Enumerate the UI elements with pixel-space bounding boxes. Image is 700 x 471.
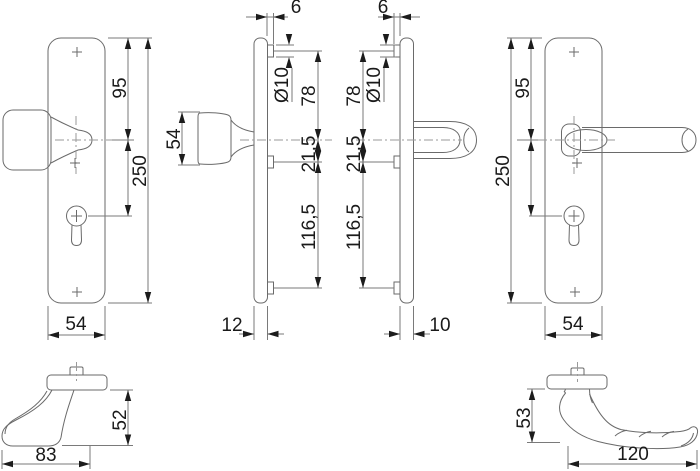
lever-grip-outline (560, 389, 698, 449)
screw-cross-marks (569, 47, 582, 297)
fixing-bolts (394, 45, 400, 294)
dim-label-12: 12 (221, 315, 242, 336)
dim-label-95-left: 95 (110, 77, 131, 98)
dim-label-d10-right: Ø10 (364, 67, 385, 103)
profile-dimension-lines (239, 13, 322, 340)
lever-front-outline (562, 124, 697, 156)
dim-label-54-right-plate: 54 (562, 314, 584, 335)
knob-detail-view: 52 83 (2, 362, 133, 469)
lever-detail-dimensions (527, 389, 697, 469)
dim-label-52: 52 (110, 409, 131, 430)
dimension-arrows (48, 38, 151, 338)
knob-rose-outline (47, 375, 107, 390)
knob-neck-top (231, 120, 254, 132)
dim-label-78-left: 78 (299, 85, 320, 106)
dimension-lines (48, 38, 152, 340)
knob-plate-front-view: 95 250 54 (3, 38, 152, 340)
technical-drawing-canvas: 95 250 54 54 (0, 0, 700, 471)
plate-profile-outline (400, 38, 414, 303)
dim-label-250-left: 250 (130, 155, 151, 187)
profile-arrows (360, 14, 425, 337)
dim-label-120: 120 (617, 444, 649, 465)
knob-grip-outline (2, 390, 74, 446)
lever-plate-front-view: 95 250 54 (493, 38, 696, 340)
dim-label-21-5-left: 21,5 (299, 136, 320, 173)
lever-detail-arrows (529, 389, 697, 467)
dim-label-6-left: 6 (291, 0, 302, 18)
knob-plate-profile-view: 6 Ø10 78 21,5 116,5 12 (221, 0, 332, 340)
dim-label-53: 53 (514, 407, 535, 428)
dim-label-250-right: 250 (493, 155, 514, 187)
dim-label-83: 83 (35, 445, 56, 466)
knob-side-outline (198, 113, 231, 165)
dim-label-10: 10 (429, 315, 450, 336)
dim-label-54-left-plate: 54 (65, 314, 87, 335)
dim-label-d10-left: Ø10 (272, 67, 293, 103)
lever-plate-profile-view: 6 Ø10 78 21,5 116,5 10 (344, 0, 477, 340)
dim-label-95-right: 95 (513, 77, 534, 98)
dim-label-116-5-right: 116,5 (344, 204, 365, 250)
dim-label-116-5-left: 116,5 (299, 204, 320, 250)
knob-side-view: 54 (164, 112, 254, 165)
dim-label-54-knob: 54 (164, 128, 185, 150)
knob-neck-bottom (231, 145, 254, 157)
dim-label-78-right: 78 (344, 85, 365, 106)
dim-label-6-right: 6 (378, 0, 389, 18)
technical-drawing-page: 95 250 54 54 (0, 0, 700, 471)
plate-profile-outline (254, 38, 268, 303)
profile-arrows (243, 14, 321, 337)
cylinder-hole (67, 206, 87, 246)
lever-detail-view: 53 120 (514, 362, 698, 469)
dim-label-21-5-right: 21,5 (344, 136, 365, 173)
cylinder-hole (564, 206, 584, 246)
